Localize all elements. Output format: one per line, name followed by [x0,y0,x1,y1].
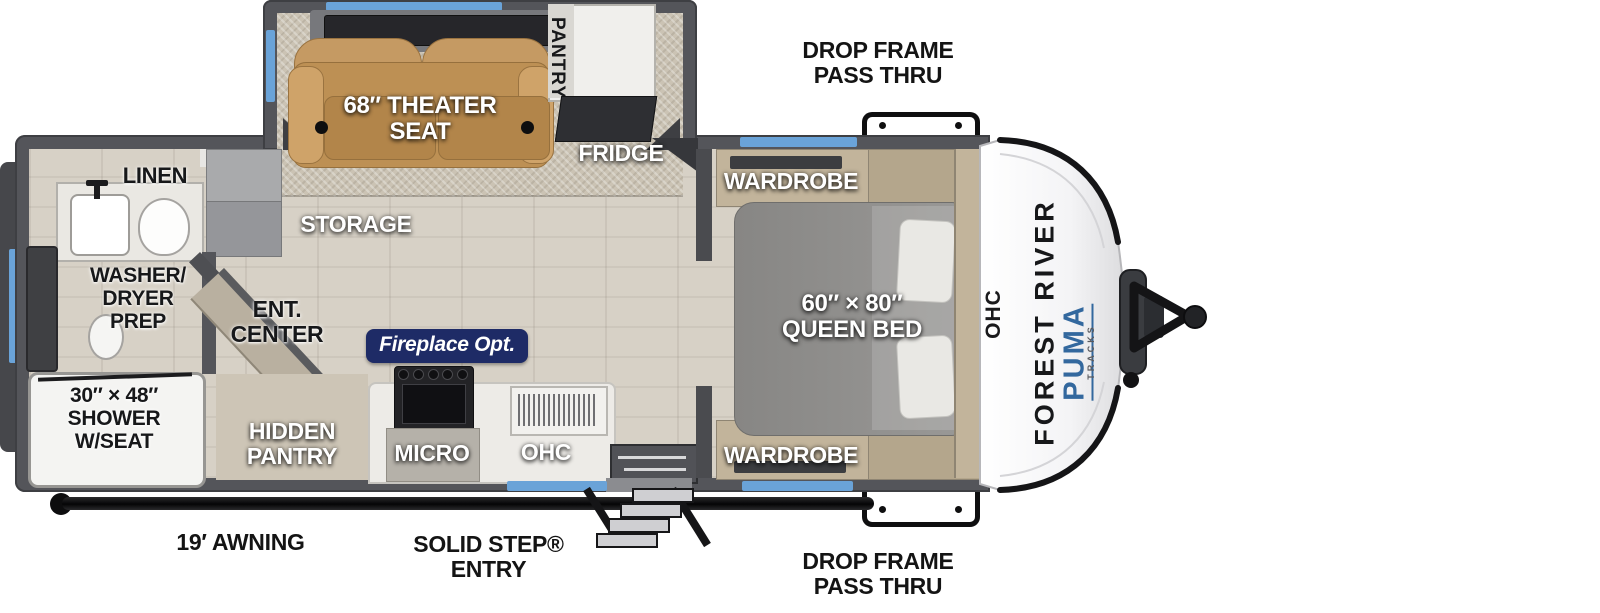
linen-label: LINEN [100,164,210,188]
step-tread [596,533,658,548]
fireplace-option-label: Fireplace Opt. [366,333,528,356]
drop-frame-pass-thru-top-label: DROP FRAME PASS THRU [775,38,981,89]
micro-label: MICRO [386,441,478,466]
storage-label: STORAGE [296,212,416,237]
floorplan-diagram: DROP FRAME PASS THRU DROP FRAME PASS THR… [0,0,1600,613]
storage-cabinet [206,149,282,203]
drop-frame-pass-thru-bottom-label: DROP FRAME PASS THRU [775,549,981,600]
wardrobe-bottom-label: WARDROBE [706,443,876,468]
slide-out-side-window [266,30,275,102]
puma-tracks-logo: TRACKS [1086,324,1096,380]
stove-knobs [398,369,468,379]
oven-window [402,384,466,424]
theater-seat-label: 68″ THEATER SEAT [312,93,528,146]
shower-label: 30″ × 48″ SHOWER W/SEAT [36,384,192,453]
fridge [555,96,657,142]
coupler-knob [1184,306,1206,328]
bracket-rivet [955,506,962,513]
ent-center-label: ENT. CENTER [224,297,330,348]
entry-steps [596,486,700,550]
bracket-rivet [955,122,962,129]
toilet-icon [138,198,190,256]
bathroom-sink [70,194,130,256]
wardrobe-top-label: WARDROBE [706,169,876,194]
pass-thru-bracket-bottom [862,492,980,527]
washer-dryer-prep-label: WASHER/ DRYER PREP [75,264,201,333]
hidden-pantry-label: HIDDEN PANTRY [222,419,362,470]
storage-cabinet [206,201,282,257]
fridge-label: FRIDGE [566,141,676,166]
bedroom-wall [696,149,712,261]
step-tread [608,518,670,533]
queen-bed-label: 60″ × 80″ QUEEN BED [742,291,962,344]
bedroom-bottom-window [742,481,853,491]
step-tread [632,488,694,503]
bracket-rivet [879,122,886,129]
solid-step-entry-label: SOLID STEP® ENTRY [386,532,591,583]
forest-river-logo: FOREST RIVER [1030,198,1061,446]
jack-foot [1123,372,1139,388]
vent-slats [518,394,596,426]
bracket-rivet [879,506,886,513]
kitchen-ohc-label: OHC [500,440,592,465]
bed-ohc-label: OHC [982,289,1006,339]
step-tread [620,503,682,518]
entry-step-edge [624,468,686,471]
pantry-label: PANTRY [546,17,568,99]
awning-bar [62,497,874,510]
pillow [896,335,956,420]
closet-door [26,246,58,372]
entry-step-edge [618,456,686,459]
awning-length-label: 19′ AWNING [138,530,343,555]
bedroom-top-window [740,137,857,147]
